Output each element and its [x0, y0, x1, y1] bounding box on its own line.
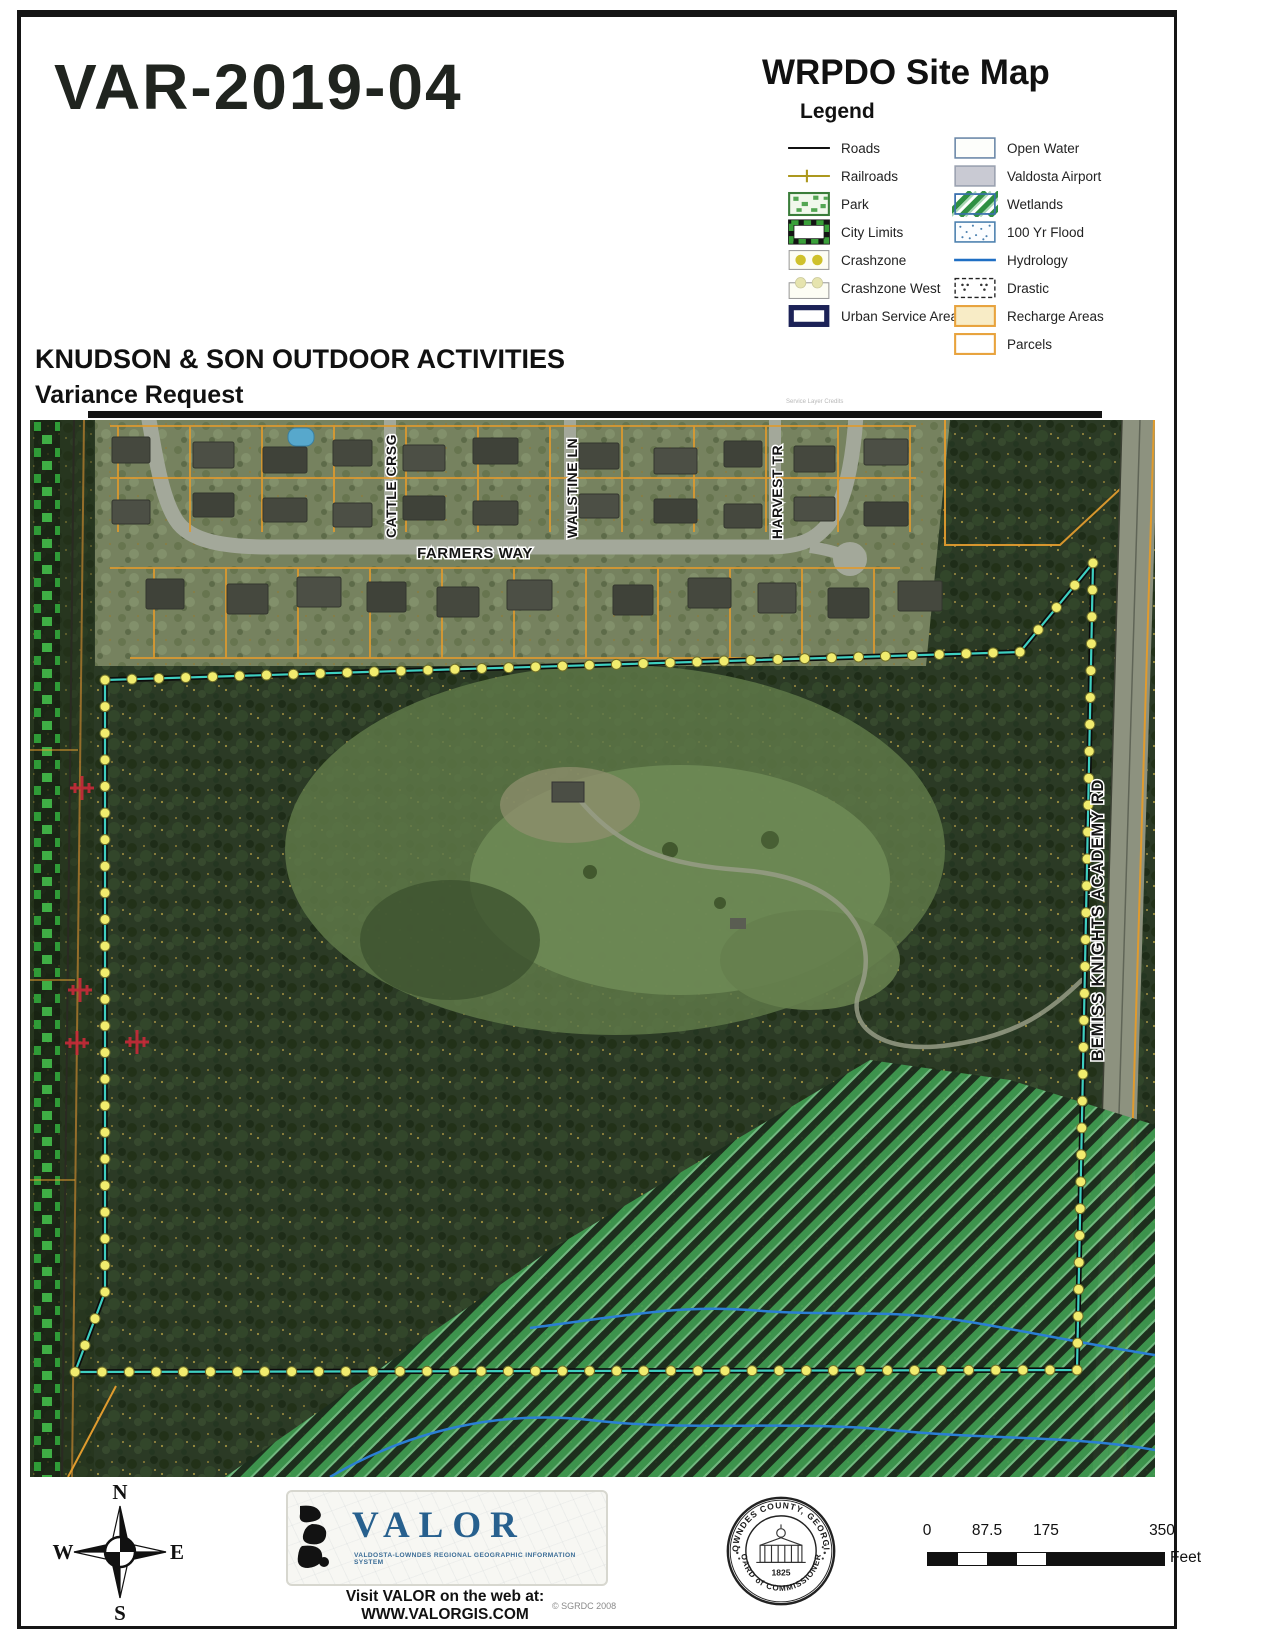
legend-label: Recharge Areas	[1007, 309, 1104, 324]
legend-item-railroads: Railroads	[786, 162, 958, 190]
scale-tick-87-5: 87.5	[972, 1522, 1002, 1540]
seal-year: 1825	[771, 1568, 790, 1578]
valor-name: VALOR	[352, 1504, 526, 1547]
legend-column-left: Roads Railroads Park City Limits Crashzo…	[786, 134, 958, 330]
scanned-map-page: { "header": { "case_number": "VAR-2019-0…	[0, 0, 1275, 1651]
compass-north-label: N	[112, 1480, 127, 1504]
crashzone-swatch-icon	[786, 247, 832, 273]
legend-label: City Limits	[841, 225, 903, 240]
valdosta-airport-swatch-icon	[952, 163, 998, 189]
legend-item-hydrology: Hydrology	[952, 246, 1104, 274]
valor-glyph-icon	[296, 1504, 330, 1572]
legend-item-valdosta-airport: Valdosta Airport	[952, 162, 1104, 190]
page-border-bottom	[17, 1626, 1177, 1629]
legend-label: Crashzone	[841, 253, 906, 268]
page-border-left	[17, 10, 21, 1629]
legend-item-drastic: Drastic	[952, 274, 1104, 302]
cattle-crsg-label: CATTLE CRSG	[383, 434, 399, 538]
harvest-tr-label: HARVEST TR	[769, 445, 785, 539]
map-neatline	[88, 411, 1102, 418]
legend-item-wetlands: Wetlands	[952, 190, 1104, 218]
scale-tick-0: 0	[923, 1522, 932, 1540]
legend-item-crashzone: Crashzone	[786, 246, 958, 274]
flood-swatch-icon	[952, 219, 998, 245]
legend-item-parcels: Parcels	[952, 330, 1104, 358]
legend-item-park: Park	[786, 190, 958, 218]
drastic-swatch-icon	[952, 275, 998, 301]
city-limits-swatch-icon	[786, 219, 832, 245]
service-layer-credits: Service Layer Credits	[786, 399, 843, 405]
legend-column-right: Open Water Valdosta Airport Wetlands 100…	[952, 134, 1104, 358]
legend-item-crashzone-west: Crashzone West	[786, 274, 958, 302]
hydrology-line-icon	[952, 247, 998, 273]
page-border-top	[17, 10, 1177, 17]
legend-label: Parcels	[1007, 337, 1052, 352]
walstine-ln-label: WALSTINE LN	[564, 438, 580, 538]
compass-rose: N E S W	[48, 1480, 192, 1624]
legend-label: Roads	[841, 141, 880, 156]
parcels-swatch-icon	[952, 331, 998, 357]
legend-label: Valdosta Airport	[1007, 169, 1101, 184]
scale-tick-175: 175	[1033, 1522, 1059, 1540]
page-border-right	[1174, 10, 1177, 1629]
legend-title: Legend	[800, 100, 875, 124]
legend-item-urban-service-area: Urban Service Area	[786, 302, 958, 330]
scale-unit-label: Feet	[1170, 1549, 1201, 1567]
farmers-way-label: FARMERS WAY	[417, 545, 533, 562]
open-water-swatch-icon	[952, 135, 998, 161]
project-name: KNUDSON & SON OUTDOOR ACTIVITIES	[35, 344, 565, 375]
recharge-areas-swatch-icon	[952, 303, 998, 329]
legend-item-city-limits: City Limits	[786, 218, 958, 246]
urban-service-area-swatch-icon	[786, 303, 832, 329]
farm-house	[552, 782, 584, 802]
railroads-line-icon	[786, 163, 832, 189]
case-number: VAR-2019-04	[54, 50, 463, 124]
scale-tick-350: 350	[1149, 1522, 1175, 1540]
outbuilding	[730, 918, 746, 929]
valor-copyright: © SGRDC 2008	[552, 1601, 616, 1611]
legend-label: Urban Service Area	[841, 309, 958, 324]
wetlands-swatch-icon	[952, 191, 998, 217]
legend-label: Hydrology	[1007, 253, 1068, 268]
aerial-site-map: FARMERS WAY CATTLE CRSG WALSTINE LN HARV…	[30, 420, 1155, 1477]
legend-item-100yr-flood: 100 Yr Flood	[952, 218, 1104, 246]
legend-item-roads: Roads	[786, 134, 958, 162]
roads-line-icon	[786, 135, 832, 161]
compass-east-label: E	[170, 1540, 184, 1564]
valor-logo: VALOR VALDOSTA-LOWNDES REGIONAL GEOGRAPH…	[286, 1490, 608, 1586]
project-subtitle: Variance Request	[35, 381, 243, 410]
legend-label: Crashzone West	[841, 281, 941, 296]
crashzone-west-swatch-icon	[786, 275, 832, 301]
compass-south-label: S	[114, 1601, 126, 1624]
legend-label: Railroads	[841, 169, 898, 184]
swimming-pool	[288, 428, 314, 446]
bemiss-knights-academy-rd-label: BEMISS KNIGHTS ACADEMY RD	[1089, 779, 1107, 1062]
compass-star-icon	[74, 1506, 166, 1598]
legend-label: 100 Yr Flood	[1007, 225, 1084, 240]
scale-bar: 0 87.5 175 350 Feet	[900, 1522, 1200, 1582]
legend-item-open-water: Open Water	[952, 134, 1104, 162]
city-limits-band	[34, 420, 60, 1477]
legend-label: Open Water	[1007, 141, 1079, 156]
scale-bar-segments	[927, 1552, 1165, 1566]
legend-label: Park	[841, 197, 869, 212]
county-seal: LOWNDES COUNTY, GEORGIA BOARD of COMMISS…	[724, 1494, 838, 1608]
legend-item-recharge-areas: Recharge Areas	[952, 302, 1104, 330]
valor-tagline: VALDOSTA-LOWNDES REGIONAL GEOGRAPHIC INF…	[354, 1552, 606, 1566]
legend-label: Drastic	[1007, 281, 1049, 296]
cul-de-sac	[833, 542, 867, 576]
legend-label: Wetlands	[1007, 197, 1063, 212]
map-title: WRPDO Site Map	[762, 53, 1050, 93]
park-swatch-icon	[786, 191, 832, 217]
compass-west-label: W	[53, 1540, 74, 1564]
